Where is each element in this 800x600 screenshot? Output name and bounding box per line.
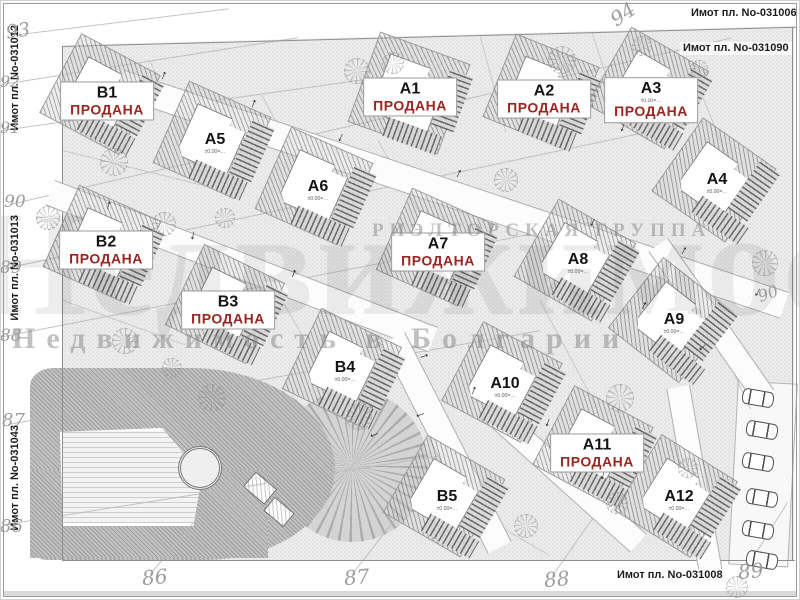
sold-badge: ПРОДАНА xyxy=(373,98,447,113)
contour-number: 94 xyxy=(607,0,639,29)
house-label-b5: B5±0.00=… xyxy=(433,488,461,512)
house-id-text: A6 xyxy=(304,178,332,196)
sold-badge: ПРОДАНА xyxy=(401,253,475,268)
contour-number: 86 xyxy=(141,566,168,588)
tree-icon xyxy=(36,206,60,230)
contour-number: 89 xyxy=(0,260,22,277)
contour-number: 92 xyxy=(0,74,20,90)
tree-icon xyxy=(606,384,634,412)
contour-line xyxy=(20,8,229,35)
tree-icon xyxy=(494,168,518,192)
plot-label: Имот пл. No-031006 xyxy=(688,7,800,20)
tree-icon xyxy=(112,328,138,354)
contour-number: 87 xyxy=(2,412,25,430)
house-id-text: A10 xyxy=(486,375,523,393)
house-label-a6: A6±0.00=… xyxy=(304,178,332,202)
house-id-text: A12 xyxy=(660,488,697,506)
house-label-a4: A4±0.00=… xyxy=(703,171,731,195)
tree-icon xyxy=(606,492,628,514)
house-id-text: A2 xyxy=(530,83,558,101)
tree-icon xyxy=(100,148,128,176)
tree-icon xyxy=(548,46,576,74)
sold-badge: ПРОДАНА xyxy=(560,454,634,469)
tree-icon xyxy=(215,208,235,228)
house-label-a9: A9±0.00=… xyxy=(660,311,688,335)
house-id-text: B2 xyxy=(92,234,120,252)
tree-icon xyxy=(382,52,404,74)
house-label-a10: A10±0.00=… xyxy=(486,375,523,399)
contour-number: 91 xyxy=(0,120,20,136)
tree-icon xyxy=(752,250,778,276)
house-id-text: B3 xyxy=(214,294,242,312)
elevation-text: ±0.00=… xyxy=(705,189,729,195)
sold-badge: ПРОДАНА xyxy=(69,251,143,266)
tree-icon xyxy=(632,36,652,56)
house-id-text: B1 xyxy=(93,85,121,103)
scan-edge-strip xyxy=(4,591,796,596)
contour-number: 87 xyxy=(343,566,370,588)
house-id-text: A1 xyxy=(396,81,424,99)
house-id-text: B5 xyxy=(433,488,461,506)
elevation-text: ±0.00=… xyxy=(333,377,357,383)
plot-label: Имот пл. No-031090 xyxy=(680,42,792,55)
tree-icon xyxy=(678,458,698,478)
tree-icon xyxy=(152,212,176,236)
site-plan-map: ↓↓↓↓↓↓↓↓↓↓↓↓↓↓↓↓↓↓↓↓ B1ПРОДАНАA5±0.00=…A… xyxy=(0,0,800,600)
house-label-a11: A11ПРОДАНА xyxy=(550,434,644,473)
elevation-text: ±0.00=… xyxy=(306,196,330,202)
house-id-text: A11 xyxy=(579,437,615,455)
tree-icon xyxy=(162,358,182,378)
elevation-text: ±0.00=… xyxy=(620,98,683,104)
sold-badge: ПРОДАНА xyxy=(70,102,144,117)
house-label-b1: B1ПРОДАНА xyxy=(60,82,154,121)
house-id-text: A8 xyxy=(564,251,592,269)
tree-icon xyxy=(198,384,226,412)
house-label-a5: A5±0.00=… xyxy=(201,131,229,155)
sold-badge: ПРОДАНА xyxy=(507,100,581,115)
elevation-text: ±0.00=… xyxy=(663,506,695,512)
sold-badge: ПРОДАНА xyxy=(614,104,688,119)
parcel-boundary-line xyxy=(62,560,795,561)
house-id-text: A7 xyxy=(424,236,452,254)
elevation-text: ±0.00=… xyxy=(662,329,686,335)
plot-label: Имот пл. No-031043 xyxy=(6,425,25,531)
contour-number: 93 xyxy=(5,20,32,42)
elevation-text: ±0.00=… xyxy=(489,393,521,399)
contour-number: 89 xyxy=(737,560,764,582)
sold-badge: ПРОДАНА xyxy=(191,311,265,326)
house-label-a8: A8±0.00=… xyxy=(564,251,592,275)
plot-label: Имот пл. No-031008 xyxy=(614,569,726,582)
tree-icon xyxy=(346,404,372,430)
tree-icon xyxy=(690,60,708,78)
house-id-text: A4 xyxy=(703,171,731,189)
house-label-a12: A12±0.00=… xyxy=(660,488,697,512)
house-id-text: B4 xyxy=(331,359,359,377)
spa-circle xyxy=(178,446,222,490)
tree-icon xyxy=(514,514,538,538)
contour-number: 88 xyxy=(0,328,22,345)
contour-number: 88 xyxy=(543,568,570,590)
house-label-b3: B3ПРОДАНА xyxy=(181,291,275,330)
house-label-a1: A1ПРОДАНА xyxy=(363,78,457,117)
elevation-text: ±0.00=… xyxy=(203,149,227,155)
house-id-text: A3 xyxy=(637,80,665,98)
house-label-a7: A7ПРОДАНА xyxy=(391,233,485,272)
parcel-boundary-line xyxy=(792,27,793,560)
house-id-text: A9 xyxy=(660,311,688,329)
house-label-a2: A2ПРОДАНА xyxy=(497,80,591,119)
contour-number: 86 xyxy=(0,518,23,536)
contour-number: 90 xyxy=(4,194,26,211)
house-label-b4: B4±0.00=… xyxy=(331,359,359,383)
house-id-text: A5 xyxy=(201,131,229,149)
house-label-b2: B2ПРОДАНА xyxy=(59,231,153,270)
house-label-a3: A3±0.00=…ПРОДАНА xyxy=(604,77,698,123)
elevation-text: ±0.00=… xyxy=(566,269,590,275)
elevation-text: ±0.00=… xyxy=(435,506,459,512)
